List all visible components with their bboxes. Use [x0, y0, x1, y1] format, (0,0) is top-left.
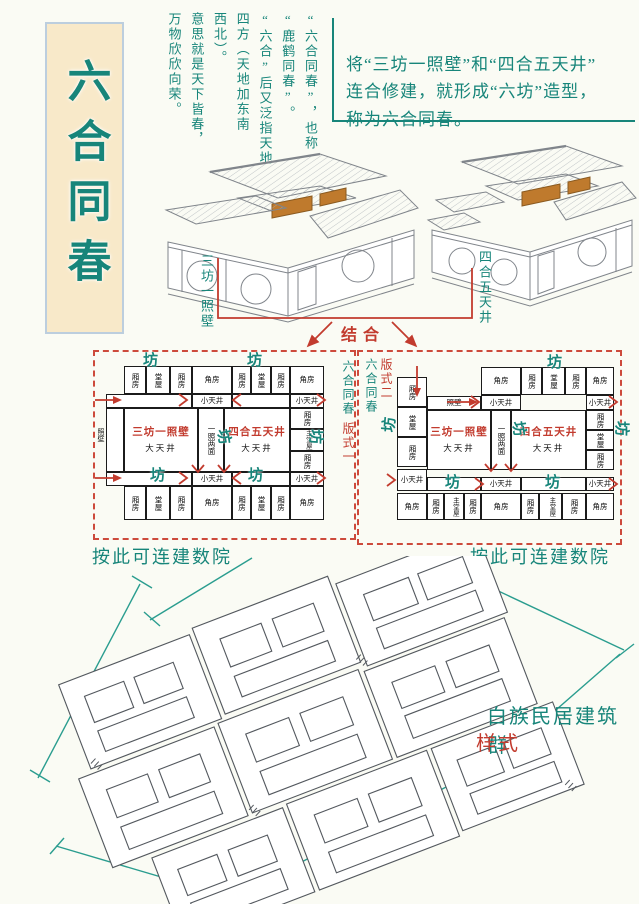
- screen-wall-cell: [106, 408, 124, 472]
- wing-label: 坊: [612, 421, 633, 436]
- courtyard-title: 三坊一照壁: [430, 427, 488, 438]
- room-cell: 厢房: [562, 493, 586, 520]
- room-cell: 厢房: [464, 493, 481, 520]
- wing-label: 坊: [508, 420, 531, 438]
- room-cell: 小天井: [192, 472, 232, 486]
- room-cell: 厢房: [232, 486, 251, 520]
- room-cell: 角房: [397, 493, 427, 520]
- wing-label: 坊: [547, 351, 562, 372]
- room-cell: 角房: [481, 367, 521, 395]
- room-cell: 小天井: [290, 472, 324, 486]
- room-cell: 小天井: [586, 477, 614, 491]
- edition-number: 版式一: [340, 422, 357, 470]
- wing-label: 坊: [143, 349, 158, 370]
- wing-label: 坊: [306, 429, 327, 444]
- room-cell: 角房: [586, 493, 614, 520]
- room-cell: 堂屋: [251, 366, 271, 394]
- room-cell: 厢房: [124, 366, 146, 394]
- corridor-cell: [106, 472, 192, 486]
- room-cell: 角房: [290, 486, 324, 520]
- wing-label: 坊: [248, 464, 263, 485]
- room-cell: 小天井: [397, 469, 427, 491]
- room-cell: 厢房: [521, 493, 539, 520]
- screen-wall-label: 照壁: [96, 428, 106, 442]
- room-cell: 堂屋: [586, 430, 614, 450]
- courtyard-label: 大天井: [241, 444, 273, 453]
- room-cell: 厢房: [397, 377, 427, 407]
- courtyard-title: 三坊一照壁: [132, 427, 190, 438]
- combine-label: 结合: [341, 321, 385, 345]
- room-cell: 角房: [481, 493, 521, 520]
- corridor-cell: [232, 394, 290, 408]
- room-cell: 厢房: [170, 366, 192, 394]
- floorplan-edition-2: 六合同春 版式二 厢房 堂屋 厢房 小天井 角房 照壁 角房 小天井 厢房 堂屋…: [357, 350, 622, 545]
- room-cell: 厢房: [232, 366, 251, 394]
- courtyard-label: 大天井: [443, 444, 475, 453]
- room-cell: 小天井: [290, 394, 324, 408]
- corridor-cell: [106, 394, 192, 408]
- edition-series: 六合同春: [340, 360, 357, 420]
- room-cell: 厢房: [170, 486, 192, 520]
- wing-label: 坊: [545, 471, 560, 492]
- room-cell: 堂屋: [397, 407, 427, 437]
- room-cell: 厢房: [427, 493, 444, 520]
- note-box: 将“三坊一照壁”和“四合五天井” 连合修建，就形成“六坊”造型， 称为六合同春。: [332, 18, 635, 122]
- main-hall-cell: 主堂屋: [539, 493, 562, 520]
- room-cell: 小天井: [586, 395, 614, 410]
- room-cell: 角房: [192, 486, 232, 520]
- room-cell: 厢房: [290, 451, 324, 472]
- room-cell: 厢房: [271, 366, 290, 394]
- page-title: 六合同春: [53, 58, 117, 298]
- room-cell: 厢房: [124, 486, 146, 520]
- room-cell: 角房: [192, 366, 232, 394]
- courtyard-cell: 四合五天井 大天井: [511, 410, 586, 470]
- room-cell: 角房: [586, 367, 614, 395]
- wing-label: 坊: [247, 349, 262, 370]
- room-cell: 小天井: [192, 394, 232, 408]
- room-cell: 堂屋: [251, 486, 271, 520]
- room-cell: 厢房: [586, 450, 614, 470]
- room-cell: 堂屋: [146, 366, 170, 394]
- room-cell: 厢房: [271, 486, 290, 520]
- room-cell: 厢房: [586, 410, 614, 430]
- room-cell: 厢房: [565, 367, 586, 395]
- shared-wall-cell: 一照两面: [491, 410, 511, 470]
- room-cell: 堂屋: [146, 486, 170, 520]
- courtyard-label: 大天井: [533, 444, 565, 453]
- edition-number: 版式二: [378, 358, 395, 406]
- room-cell: 厢房: [521, 367, 542, 395]
- courtyard-cell: 三坊一照壁 大天井: [427, 410, 491, 470]
- combine-bracket: [180, 250, 490, 352]
- title-box: 六合同春: [45, 22, 124, 334]
- room-cell: 小天井: [481, 477, 521, 491]
- complex-sublabel: 样式: [476, 727, 520, 756]
- room-cell: 小天井: [481, 395, 521, 410]
- courtyard-cell: 三坊一照壁 大天井: [124, 408, 198, 472]
- courtyard-title: 四合五天井: [228, 427, 286, 438]
- floorplan-edition-1: 厢房 堂屋 厢房 角房 厢房 堂屋 厢房 角房 小天井 小天井 三坊一照壁 大天…: [93, 350, 356, 540]
- main-hall-cell: 主堂屋: [444, 493, 464, 520]
- room-cell: 厢房: [290, 408, 324, 429]
- room-cell: 厢房: [397, 437, 427, 467]
- room-cell: 角房: [290, 366, 324, 394]
- wing-label: 坊: [445, 471, 460, 492]
- wing-label: 坊: [150, 464, 165, 485]
- courtyard-label: 大天井: [145, 444, 177, 453]
- wing-label: 坊: [377, 416, 399, 433]
- screen-wall-cell: 照壁: [427, 396, 481, 410]
- note-text: 将“三坊一照壁”和“四合五天井” 连合修建，就形成“六坊”造型， 称为六合同春。: [346, 51, 635, 133]
- infographic-page: 六合同春 “六合同春”，也称 “鹿鹤同春”。 “六合”后又泛指天地 四方（天地加…: [0, 0, 639, 904]
